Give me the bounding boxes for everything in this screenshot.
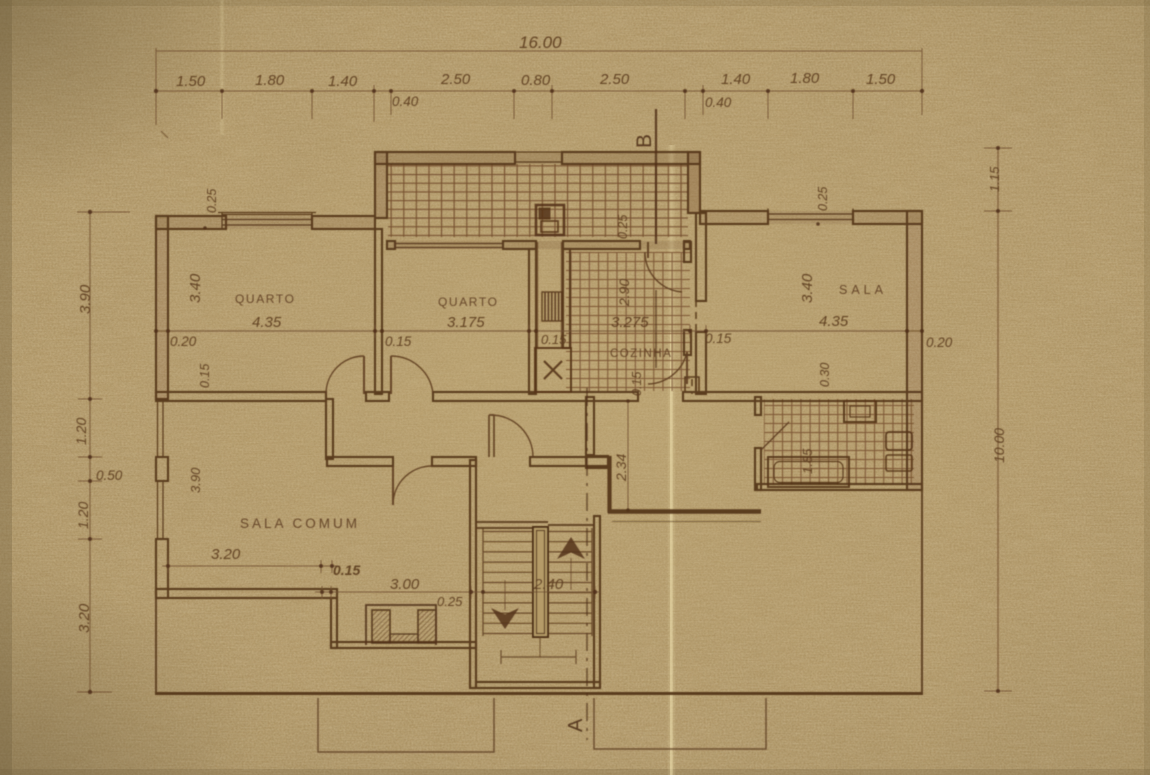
svg-text:B: B	[633, 134, 656, 148]
svg-text:SALA: SALA	[839, 283, 887, 297]
svg-text:3.20: 3.20	[76, 603, 93, 633]
svg-text:16.00: 16.00	[519, 33, 562, 52]
svg-text:2.50: 2.50	[440, 71, 471, 88]
svg-text:0.15: 0.15	[705, 331, 732, 346]
svg-text:0.25: 0.25	[205, 189, 219, 213]
svg-text:0.15: 0.15	[385, 334, 412, 349]
svg-text:1.40: 1.40	[721, 71, 751, 88]
svg-text:0.15: 0.15	[333, 562, 360, 578]
svg-text:1.50: 1.50	[866, 71, 896, 88]
svg-text:1.15: 1.15	[987, 166, 1002, 192]
svg-text:0.15: 0.15	[198, 364, 212, 388]
svg-text:0.25: 0.25	[616, 215, 630, 239]
svg-text:QUARTO: QUARTO	[438, 295, 499, 309]
svg-text:0.20: 0.20	[170, 334, 197, 349]
svg-text:3.90: 3.90	[188, 467, 203, 493]
svg-text:2.90: 2.90	[616, 279, 632, 307]
svg-text:0.15: 0.15	[630, 372, 644, 396]
svg-text:0.80: 0.80	[521, 72, 551, 89]
svg-text:4.35: 4.35	[819, 313, 849, 330]
svg-text:0.40: 0.40	[705, 95, 732, 110]
svg-text:3.90: 3.90	[77, 284, 94, 314]
svg-text:2.50: 2.50	[599, 71, 630, 88]
svg-text:A: A	[565, 718, 587, 732]
svg-text:1.50: 1.50	[176, 73, 206, 90]
svg-text:1.20: 1.20	[75, 502, 91, 529]
svg-text:0.30: 0.30	[818, 363, 832, 387]
svg-text:4.35: 4.35	[252, 314, 282, 331]
svg-text:3.40: 3.40	[799, 273, 816, 303]
svg-text:1.80: 1.80	[255, 72, 285, 89]
svg-text:0.40: 0.40	[392, 94, 419, 109]
svg-text:1.80: 1.80	[790, 70, 820, 87]
svg-text:0.15: 0.15	[541, 332, 567, 347]
svg-text:3.275: 3.275	[611, 314, 649, 331]
svg-text:1.40: 1.40	[328, 73, 358, 90]
svg-text:2.34: 2.34	[613, 454, 629, 482]
svg-text:QUARTO: QUARTO	[235, 292, 296, 306]
svg-text:0.25: 0.25	[816, 187, 830, 211]
svg-text:0.50: 0.50	[96, 468, 123, 483]
svg-text:2.40: 2.40	[533, 576, 564, 593]
svg-text:0.25: 0.25	[437, 594, 463, 609]
svg-text:3.00: 3.00	[390, 576, 420, 593]
svg-text:0.20: 0.20	[926, 335, 953, 350]
svg-text:1.20: 1.20	[73, 418, 89, 445]
svg-text:1.85: 1.85	[800, 448, 815, 474]
svg-text:3.20: 3.20	[211, 546, 241, 563]
svg-text:3.40: 3.40	[187, 273, 204, 303]
svg-text:10.00: 10.00	[991, 428, 1007, 463]
svg-text:3.175: 3.175	[447, 314, 485, 331]
svg-text:COZINHA: COZINHA	[610, 348, 672, 360]
svg-text:SALA COMUM: SALA COMUM	[240, 516, 360, 531]
